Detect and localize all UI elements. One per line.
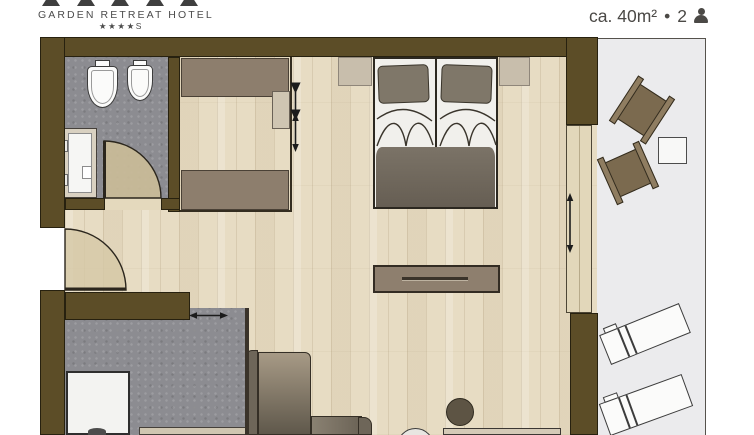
bathtub [66, 371, 130, 435]
hotel-logo-mark [42, 0, 198, 6]
wall-left-lower [40, 290, 65, 435]
pillow [440, 64, 492, 104]
logo-peak-icon [42, 0, 60, 6]
hotel-name: GARDEN RETREAT HOTEL [38, 9, 204, 21]
toilet-bowl [91, 70, 114, 104]
washbasin-drain [82, 166, 92, 179]
bidet-bowl [131, 69, 149, 97]
pillow [377, 64, 429, 104]
nightstand [338, 57, 372, 86]
room-info: ca. 40m² • 2 [589, 4, 708, 28]
logo-peak-icon [111, 0, 129, 6]
wall-left-upper [40, 37, 65, 228]
wall-bottom-right [570, 313, 598, 435]
wall-bathroom-south [161, 198, 180, 210]
bathtub-faucet [88, 428, 106, 435]
bed-bench [373, 265, 500, 293]
wardrobe-shelf [272, 91, 290, 129]
star-suffix: S [136, 21, 143, 31]
room-area-label: ca. 40m² [589, 6, 657, 27]
sliding-door-rail [579, 126, 580, 312]
wall-shower-room-divider [245, 308, 249, 435]
wall-top [40, 37, 598, 57]
wall-hall-south [65, 292, 190, 320]
double-bed [373, 57, 498, 209]
sofa-backrest [358, 417, 372, 435]
wall-top-right [566, 37, 598, 125]
logo-peak-icon [146, 0, 164, 6]
nightstand [499, 57, 530, 86]
bathroom-door-threshold [104, 198, 162, 210]
separator-dot: • [664, 6, 670, 27]
vanity-counter [139, 427, 247, 435]
stars-icon: ★★★★ [99, 21, 136, 31]
wall-bathroom-divider [168, 57, 180, 212]
person-icon [694, 8, 708, 24]
sofa-seat [311, 416, 362, 435]
wardrobe-cabinet [181, 170, 289, 210]
bench-slot [402, 277, 468, 280]
terrace-sliding-door [566, 125, 592, 313]
round-side-table [446, 398, 474, 426]
terrace-side-table [658, 137, 687, 164]
console-table [443, 428, 561, 435]
bed-blanket [376, 147, 495, 207]
logo-peak-icon [180, 0, 198, 6]
washbasin [68, 133, 92, 193]
room-capacity-label: 2 [677, 6, 687, 27]
floor-plan-page: GARDEN RETREAT HOTEL ★★★★S ca. 40m² • 2 [0, 0, 754, 435]
shower-room-floor [190, 308, 245, 322]
hotel-star-rating: ★★★★S [38, 21, 204, 32]
wall-bathroom-south [65, 198, 105, 210]
logo-peak-icon [77, 0, 95, 6]
sofa-chaise [258, 352, 311, 435]
